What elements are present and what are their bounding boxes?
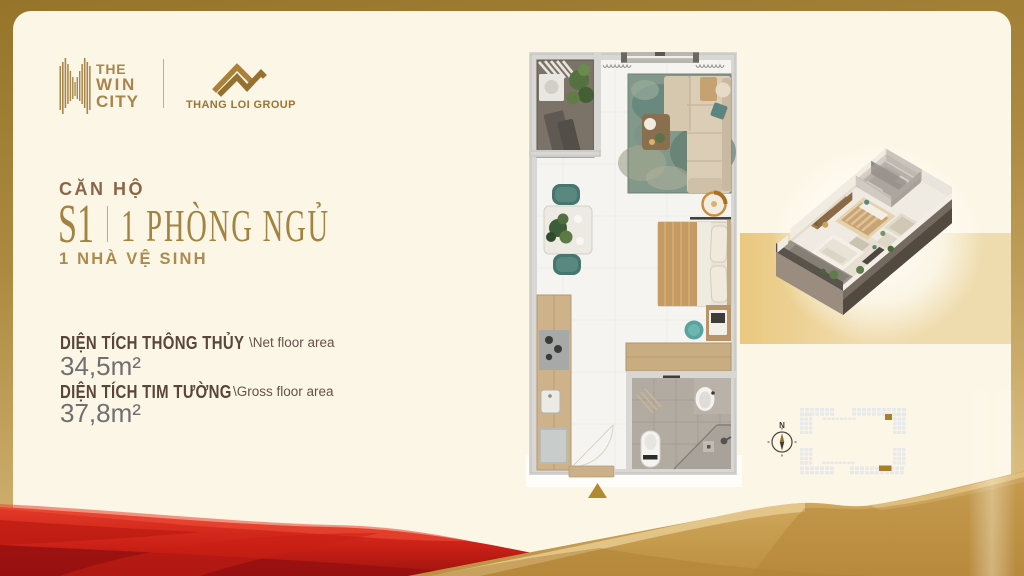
svg-text:THANG LOI GROUP: THANG LOI GROUP: [186, 99, 296, 111]
svg-text:N: N: [779, 421, 785, 430]
svg-text:CITY: CITY: [96, 92, 139, 111]
